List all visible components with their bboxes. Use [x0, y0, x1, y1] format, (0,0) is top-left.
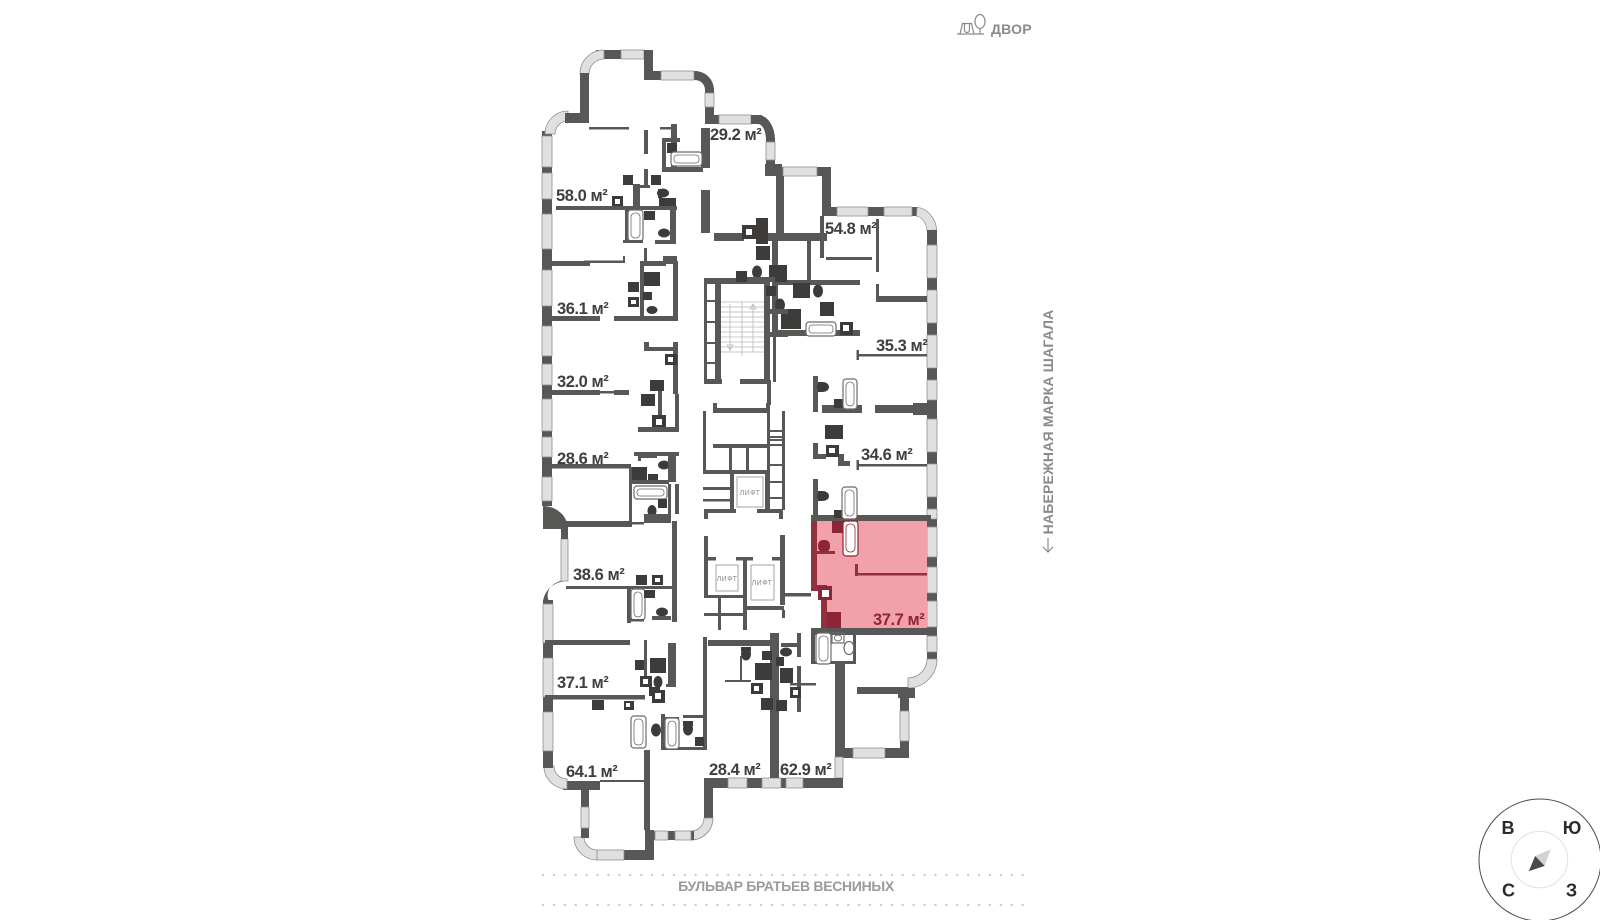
svg-text:БУЛЬВАР БРАТЬЕВ ВЕСНИНЫХ: БУЛЬВАР БРАТЬЕВ ВЕСНИНЫХ — [678, 878, 895, 894]
svg-text:64.1 м²: 64.1 м² — [566, 763, 618, 781]
svg-text:28.4 м²: 28.4 м² — [709, 761, 761, 779]
svg-text:38.6 м²: 38.6 м² — [573, 566, 625, 584]
svg-text:ЛИФТ: ЛИФТ — [717, 576, 738, 583]
svg-text:62.9 м²: 62.9 м² — [780, 761, 832, 779]
svg-text:34.6 м²: 34.6 м² — [861, 446, 913, 464]
svg-text:32.0 м²: 32.0 м² — [557, 373, 609, 391]
svg-text:37.1 м²: 37.1 м² — [557, 674, 609, 692]
svg-text:В: В — [1502, 818, 1515, 838]
svg-text:36.1 м²: 36.1 м² — [557, 300, 609, 318]
svg-text:29.2 м²: 29.2 м² — [710, 126, 762, 144]
svg-text:ЛИФТ: ЛИФТ — [752, 580, 773, 587]
svg-text:ДВОР: ДВОР — [991, 21, 1032, 37]
svg-text:54.8 м²: 54.8 м² — [825, 220, 877, 238]
svg-text:58.0 м²: 58.0 м² — [556, 187, 608, 205]
svg-text:28.6 м²: 28.6 м² — [557, 450, 609, 468]
svg-text:37.7 м²: 37.7 м² — [873, 611, 925, 629]
svg-text:35.3 м²: 35.3 м² — [876, 337, 928, 355]
svg-text:Ю: Ю — [1563, 818, 1582, 838]
svg-text:С: С — [1502, 881, 1515, 901]
svg-text:ЛИФТ: ЛИФТ — [740, 490, 761, 497]
svg-text:З: З — [1566, 881, 1577, 901]
svg-text:НАБЕРЕЖНАЯ МАРКА ШАГАЛА: НАБЕРЕЖНАЯ МАРКА ШАГАЛА — [1040, 310, 1056, 535]
